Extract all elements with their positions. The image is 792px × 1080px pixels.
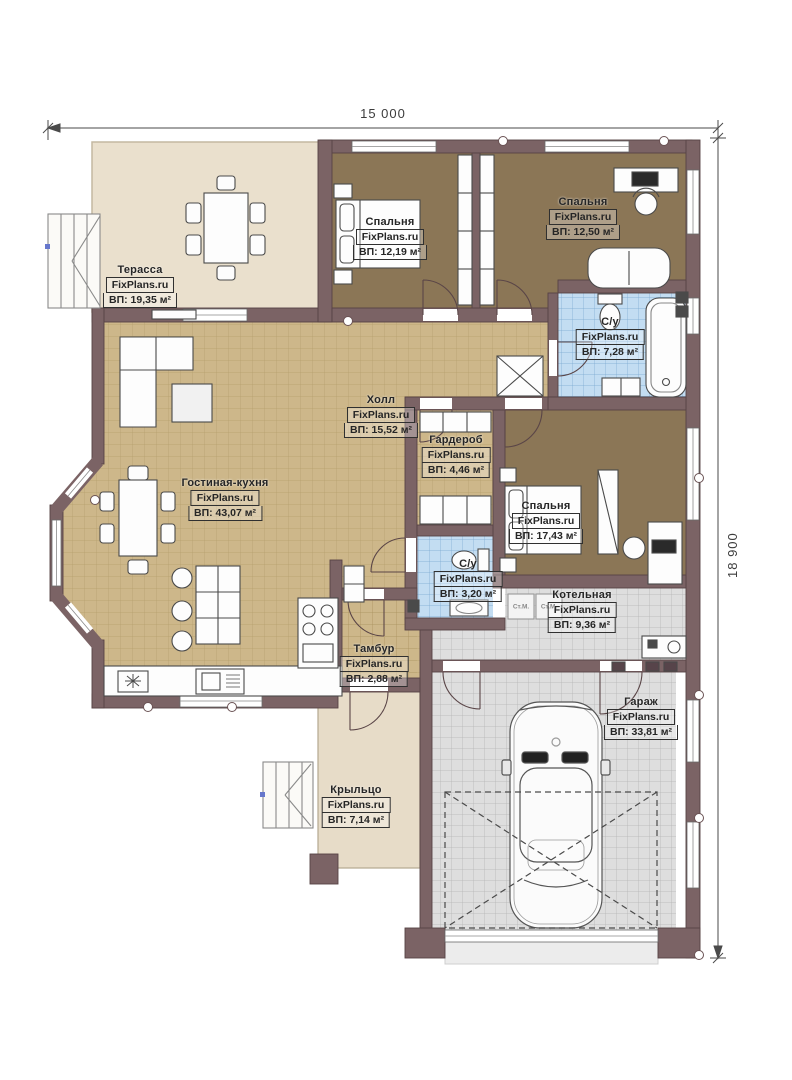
room-label-living-kitchen: Гостиная-кухня FixPlans.ru ВП: 43,07 м² (181, 477, 268, 521)
washing-machine-label: Ст.М. (541, 604, 557, 611)
room-label-vestibule: Тамбур FixPlans.ru ВП: 2,88 м² (340, 643, 409, 687)
dimension-height: 18 900 (725, 532, 740, 578)
porch-pillar (310, 854, 338, 884)
floor-plan: 15 000 18 900 Терасса FixPlans.ru ВП: 19… (0, 0, 792, 1080)
room-label-wardrobe: Гардероб FixPlans.ru ВП: 4,46 м² (422, 434, 491, 478)
room-label-bedroom-1: Спальня FixPlans.ru ВП: 12,19 м² (353, 216, 427, 260)
hall-closet (497, 356, 543, 396)
room-label-garage: Гараж FixPlans.ru ВП: 33,81 м² (604, 696, 678, 740)
side-table (172, 384, 212, 422)
car (502, 702, 610, 928)
room-label-bathroom-1: С/у FixPlans.ru ВП: 7,28 м² (576, 316, 645, 360)
kitchen-island (172, 566, 240, 651)
sink (125, 674, 141, 688)
room-label-porch: Крыльцо FixPlans.ru ВП: 7,14 м² (322, 784, 391, 828)
driveway-apron (445, 940, 658, 964)
floor-plan-drawing (0, 0, 792, 1080)
bedroom3-wardrobe (598, 470, 618, 554)
washing-machine-label: Ст.М. (513, 604, 529, 611)
porch-stairs (260, 762, 313, 828)
room-label-boiler-room: Котельная FixPlans.ru ВП: 9,36 м² (548, 589, 617, 633)
room-label-bedroom-2: Спальня FixPlans.ru ВП: 12,50 м² (546, 196, 620, 240)
dimension-width: 15 000 (343, 106, 423, 121)
room-label-terrace: Терасса FixPlans.ru ВП: 19,35 м² (103, 264, 177, 308)
tv-unit (152, 310, 196, 319)
porch-floor (318, 690, 420, 868)
room-label-bathroom-2: С/у FixPlans.ru ВП: 3,20 м² (434, 558, 503, 602)
terrace-stairs (45, 214, 100, 308)
room-label-hall: Холл FixPlans.ru ВП: 15,52 м² (344, 394, 418, 438)
room-label-bedroom-3: Спальня FixPlans.ru ВП: 17,43 м² (509, 500, 583, 544)
